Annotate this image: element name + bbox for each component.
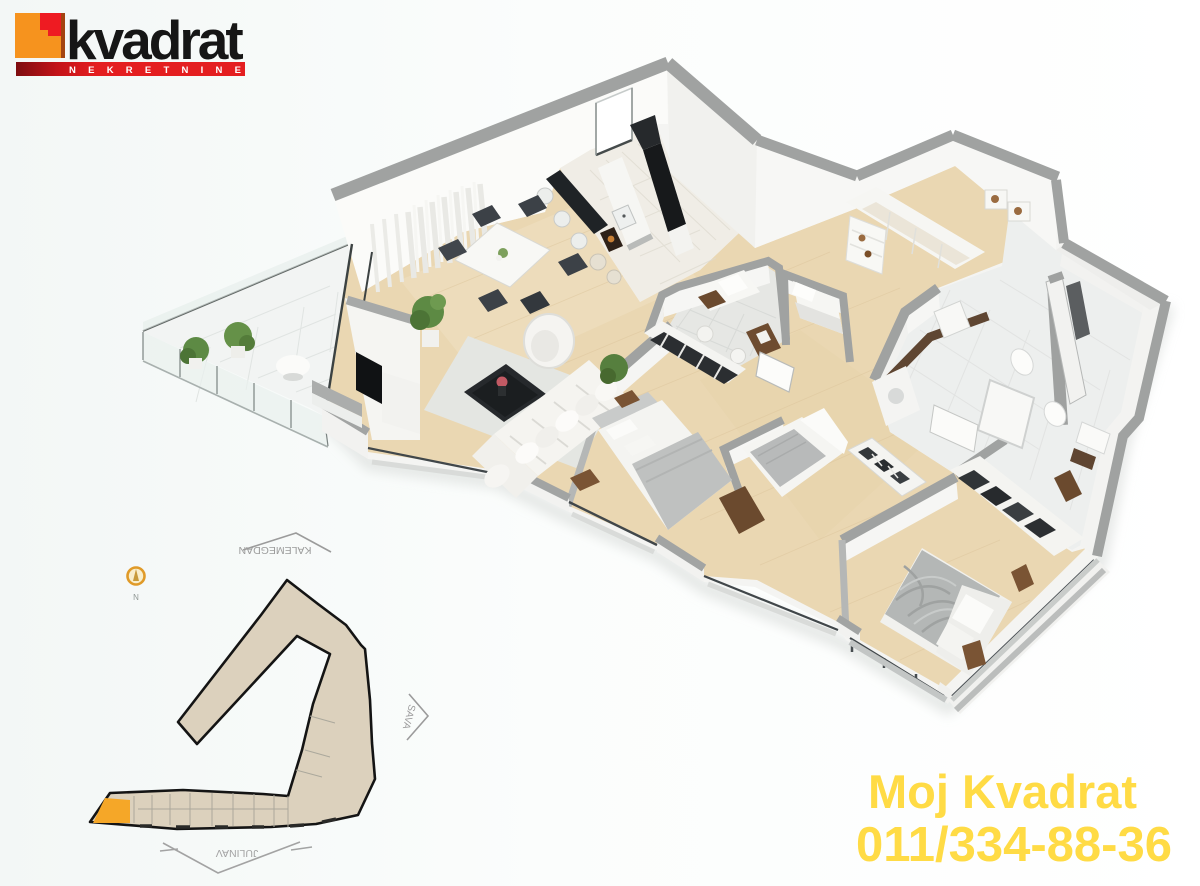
svg-text:011/334-88-36: 011/334-88-36 [856,818,1172,872]
svg-text:kvadrat: kvadrat [66,9,243,71]
svg-text:Moj Kvadrat: Moj Kvadrat [868,765,1137,818]
svg-text:KALEMEGDAN: KALEMEGDAN [239,544,312,556]
svg-text:JULINAV: JULINAV [216,847,258,859]
svg-text:N: N [133,592,139,601]
